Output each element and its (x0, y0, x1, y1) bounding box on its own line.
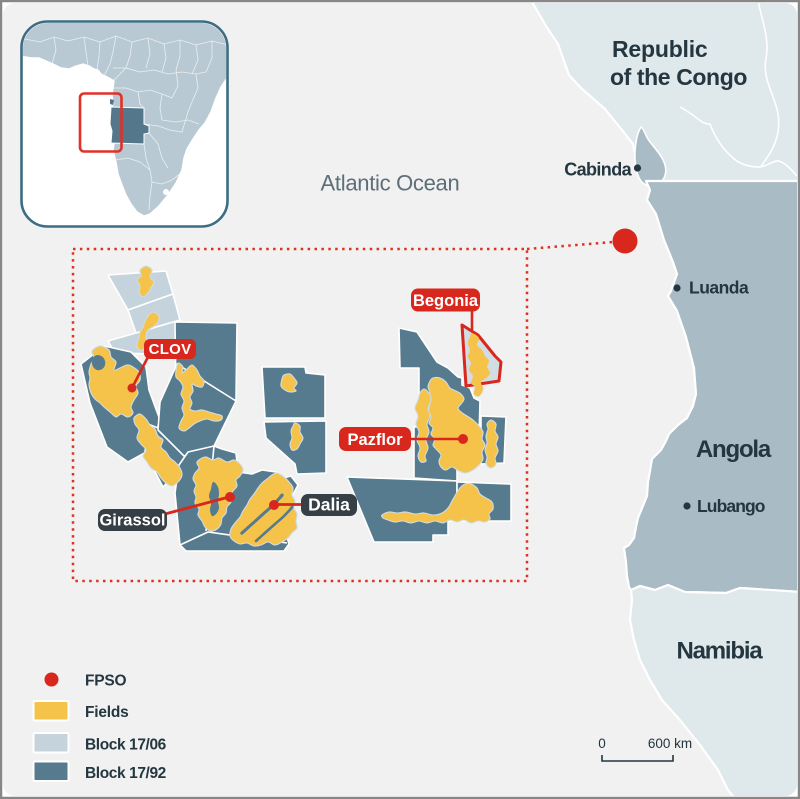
svg-text:Lubango: Lubango (697, 496, 765, 516)
svg-text:Begonia: Begonia (413, 292, 479, 310)
svg-text:0: 0 (598, 736, 606, 751)
svg-text:Girassol: Girassol (99, 512, 165, 530)
svg-text:Pazflor: Pazflor (347, 431, 403, 449)
svg-text:Block 17/92: Block 17/92 (85, 765, 166, 782)
svg-text:CLOV: CLOV (149, 341, 192, 358)
svg-text:Republic: Republic (612, 36, 708, 62)
svg-text:Namibia: Namibia (677, 638, 764, 665)
svg-text:Dalia: Dalia (308, 495, 350, 515)
svg-text:Luanda: Luanda (689, 278, 749, 298)
svg-text:of the Congo: of the Congo (610, 64, 747, 90)
svg-text:600 km: 600 km (648, 736, 692, 751)
svg-text:Cabinda: Cabinda (564, 160, 632, 180)
svg-text:Block 17/06: Block 17/06 (85, 737, 167, 754)
svg-text:Fields: Fields (85, 704, 129, 721)
svg-text:Angola: Angola (696, 436, 772, 463)
svg-text:Atlantic Ocean: Atlantic Ocean (321, 171, 460, 196)
svg-text:FPSO: FPSO (85, 673, 127, 690)
